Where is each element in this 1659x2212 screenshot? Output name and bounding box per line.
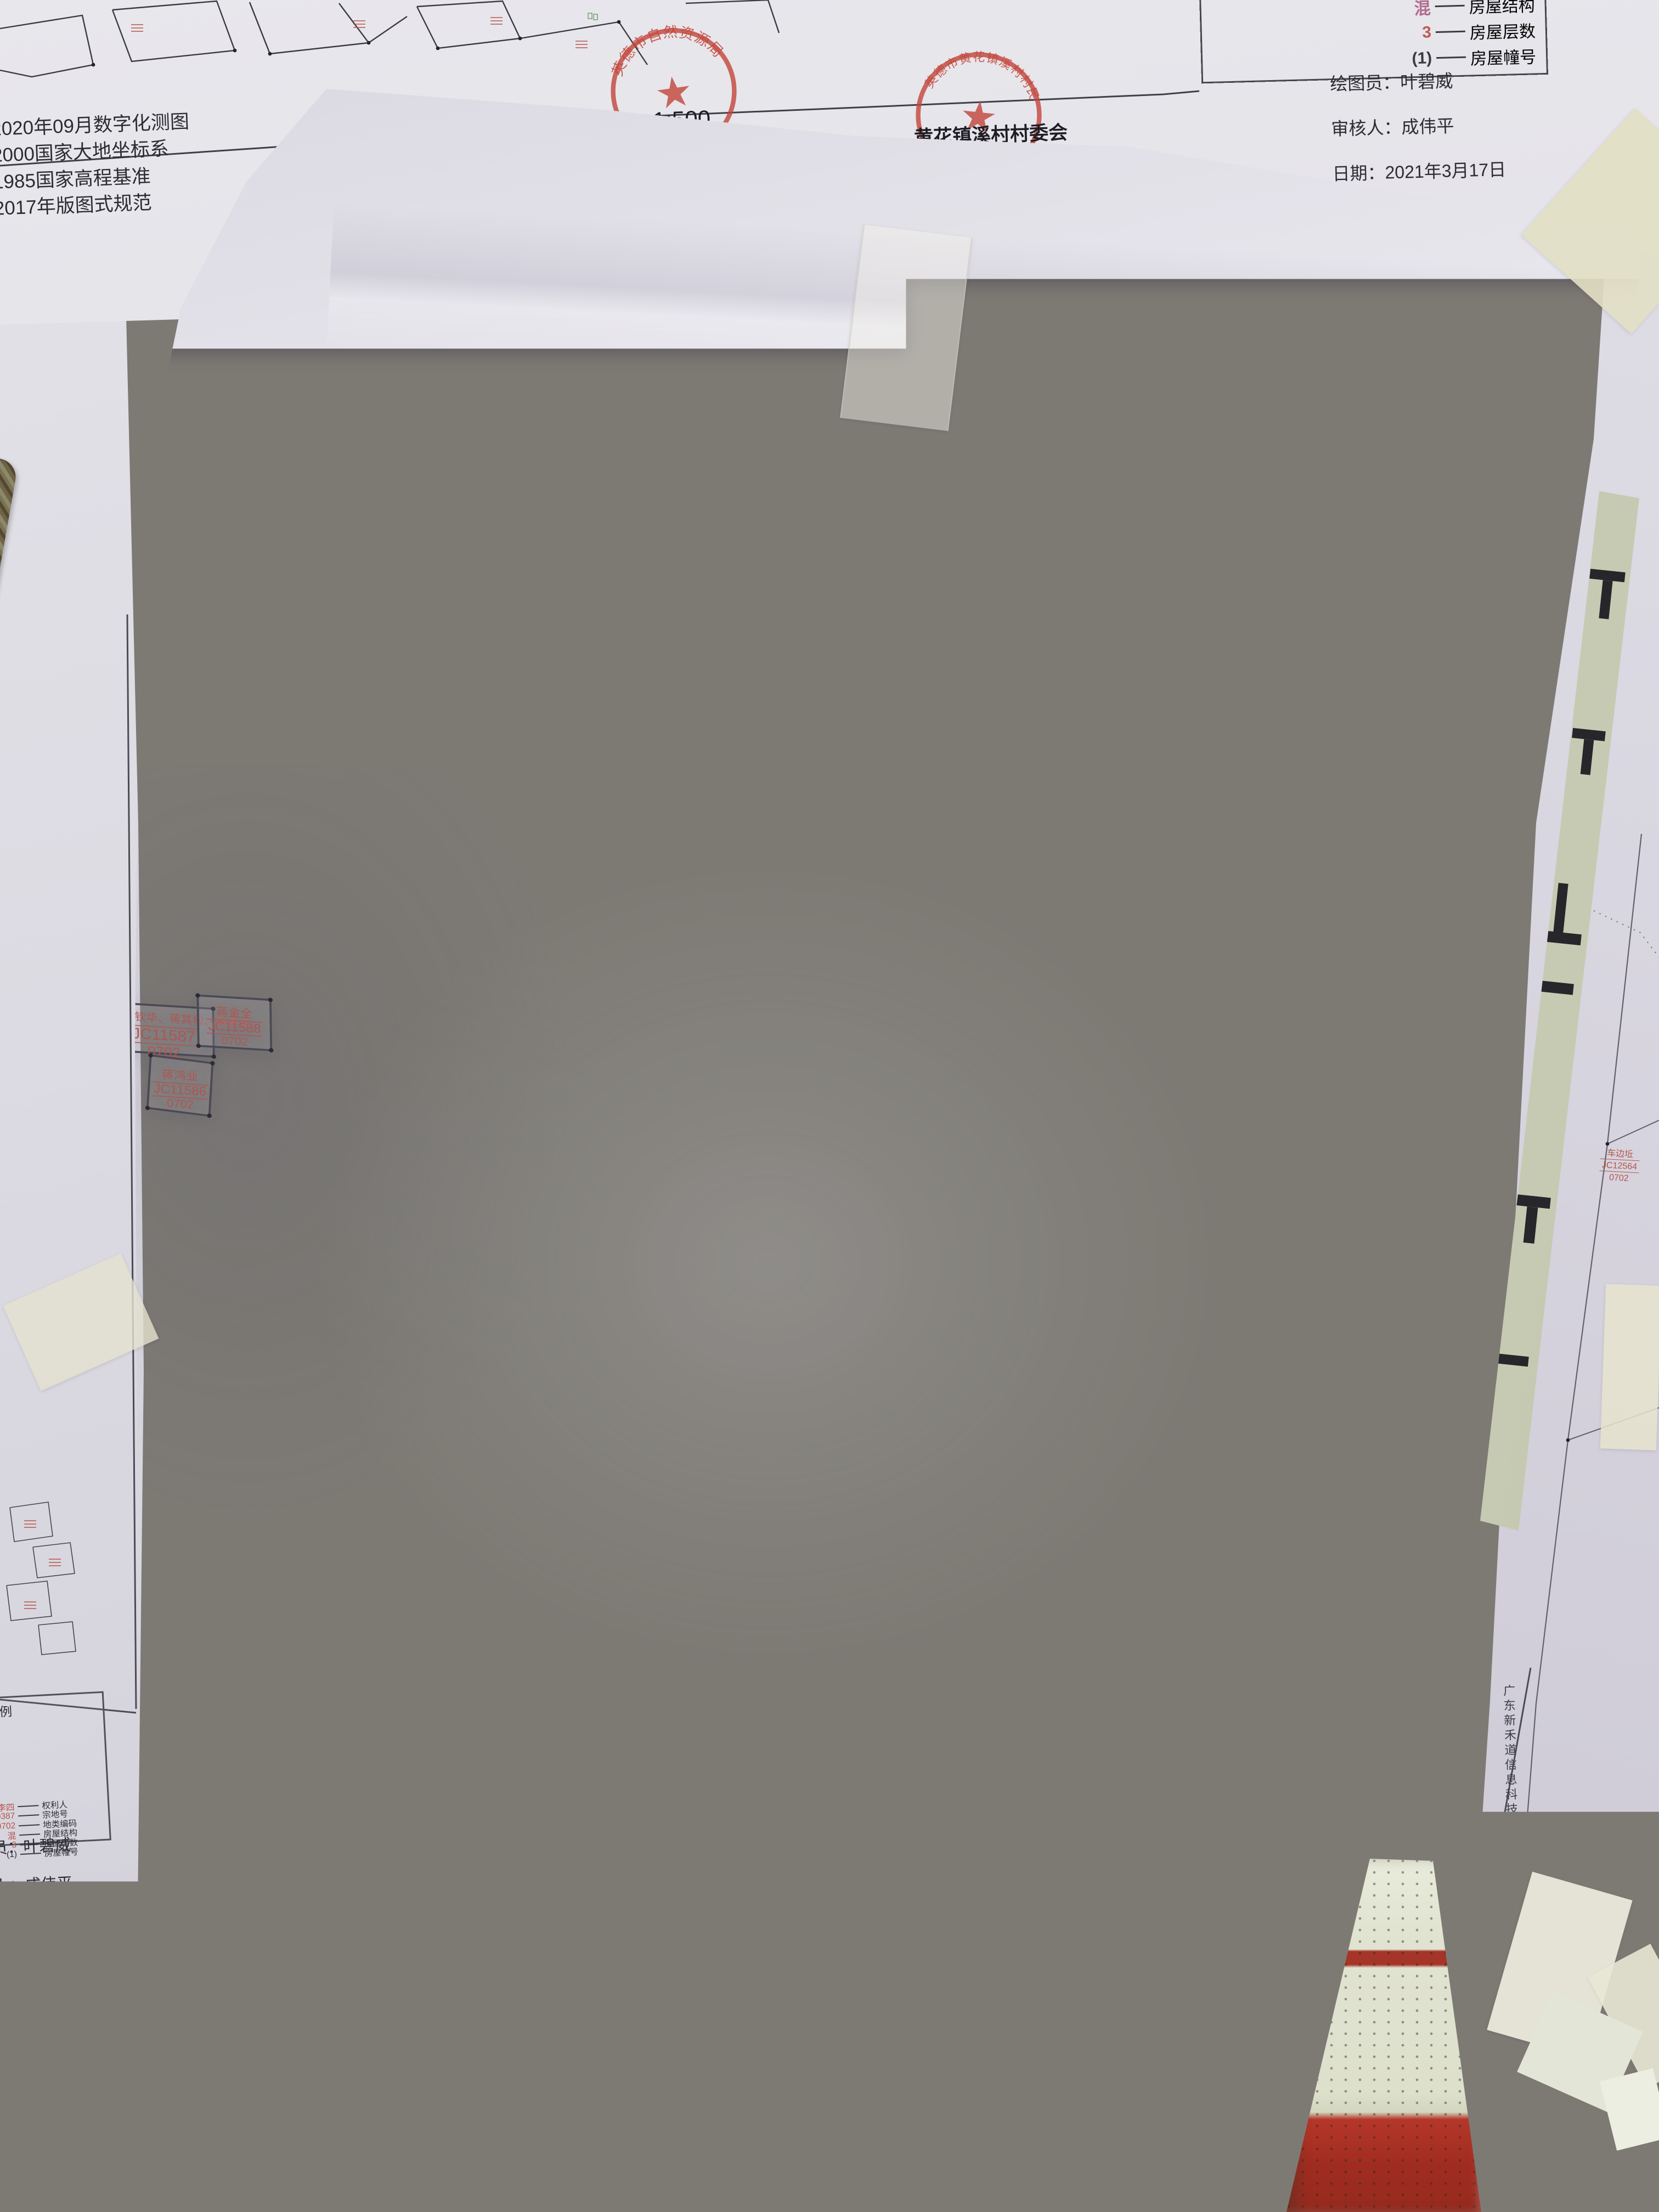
map-legend: 图 例 1：宗地界 2：宗地内标记 (1) 李四 JC00387 0702 其中…: [1172, 1739, 1397, 1897]
left-sheet-credits: 绘图员：叶碧威 审核人：成伟平 日期：2021年3月17日: [0, 1830, 121, 1952]
red-label-fragment: [575, 41, 588, 48]
svg-text:黎阿娇: 黎阿娇: [419, 1427, 456, 1442]
garden-symbol: [1205, 1020, 1219, 1034]
garden-symbol: [1147, 1071, 1161, 1085]
svg-text:0702: 0702: [550, 1571, 577, 1585]
house-row: [592, 1263, 689, 1317]
garden-symbol: [1220, 1055, 1234, 1068]
north-arrow: 北: [1425, 648, 1475, 859]
svg-text:0702: 0702: [167, 1097, 194, 1111]
svg-text:黎其祥: 黎其祥: [539, 1520, 568, 1531]
small-parcel: [989, 1779, 1018, 1805]
garden-symbol: [1286, 1038, 1300, 1051]
svg-text:0702: 0702: [1012, 1239, 1039, 1254]
house-row: [732, 1344, 855, 1412]
top-sheet-credits: 绘图员：叶碧威 审核人：成伟平 日期：2021年3月17日: [1330, 66, 1507, 205]
garden-symbol: [1355, 1059, 1369, 1072]
svg-text:0702: 0702: [424, 1455, 451, 1470]
svg-text:0702: 0702: [947, 1255, 980, 1273]
svg-text:蒋成中: 蒋成中: [883, 1080, 928, 1098]
date: 日期：2021年3月17日: [0, 1907, 121, 1937]
stone: [1558, 2189, 1571, 2198]
garden-symbol: [1319, 1152, 1333, 1165]
svg-text:蒋水旺: 蒋水旺: [947, 1145, 991, 1164]
svg-text:蒋房娣: 蒋房娣: [973, 1178, 1017, 1197]
svg-text:黎锦华: 黎锦华: [554, 1495, 591, 1510]
svg-text:蒋贵甲: 蒋贵甲: [890, 1160, 934, 1179]
garden-symbol: [1199, 1174, 1214, 1187]
svg-text:蒋仕成: 蒋仕成: [837, 1172, 873, 1187]
grass-symbol: [786, 1104, 798, 1118]
parcel-boundary-symbol: [1216, 1770, 1253, 1783]
svg-text:蒋路伟: 蒋路伟: [988, 1029, 1024, 1043]
map-scale: 1:500: [690, 1864, 727, 1882]
grass-symbol: [346, 1154, 358, 1169]
svg-text:蒋春红: 蒋春红: [545, 1543, 582, 1558]
small-parcel: [1030, 1745, 1068, 1779]
svg-text:0702: 0702: [842, 1200, 868, 1215]
garden-symbol: [1418, 1256, 1432, 1269]
garden-symbol: [1074, 1082, 1088, 1095]
legend-row-parcel-mark: 2：宗地内标记: [0, 1737, 105, 1764]
red-label-fragment: [490, 18, 503, 24]
garden-symbol: [1303, 1101, 1317, 1114]
legend-example-parcel: (1) 李四 JC00387 0702: [1198, 1805, 1267, 1846]
svg-text:黎什军: 黎什军: [628, 1396, 657, 1408]
drafter: 绘图员：叶碧威: [0, 1830, 117, 1860]
map-content: 蒋其炳、蒋钦华、蒋其松、蒋荣华JC115870702蒋金全JC115880702…: [69, 883, 1516, 1846]
svg-text:蒋鸿业: 蒋鸿业: [162, 1068, 199, 1083]
grass-symbol: [805, 1205, 817, 1219]
right-sheet-frame-corner: [1502, 1668, 1659, 1837]
svg-text:黎锡田: 黎锡田: [522, 1427, 551, 1439]
reviewer: 审核人：成伟平: [1331, 111, 1505, 140]
grass-symbol: [850, 1030, 862, 1044]
corner-point: [212, 1054, 216, 1059]
svg-text:0702: 0702: [1609, 1173, 1629, 1183]
parcel: 黎阿娇JC125200702: [392, 1407, 483, 1489]
pond: [713, 1785, 799, 1823]
garden-symbol: [1015, 982, 1029, 995]
reviewer: 审核人：成伟平: [0, 1869, 119, 1898]
garden-symbol: [1094, 1221, 1109, 1234]
tape: [1600, 1284, 1659, 1450]
svg-text:黎山妹: 黎山妹: [530, 1473, 558, 1485]
garden-symbol: [1385, 1129, 1399, 1142]
grass-symbol: [727, 1247, 739, 1261]
svg-text:蒋陕芳: 蒋陕芳: [1007, 1211, 1043, 1226]
garden-symbol: [1441, 1181, 1455, 1194]
grass-symbol: [383, 1086, 395, 1100]
parcel: 蒋鸿业JC115860702: [145, 1053, 215, 1118]
garden-symbol: [1323, 976, 1338, 989]
grass-symbol: [439, 1144, 452, 1159]
note-line: 2000国家大地坐标系: [1493, 1854, 1609, 1873]
garden-symbol: [1282, 1214, 1296, 1227]
top-sheet-legend-rows: 混房屋结构3房屋层数(1)房屋幢号: [1201, 0, 1546, 77]
house-row: [611, 1570, 707, 1623]
corner-point: [195, 993, 200, 997]
svg-text:车边坵: 车边坵: [1607, 1148, 1634, 1159]
small-parcel: [669, 1769, 701, 1797]
house-row: [780, 1408, 876, 1464]
garden-symbol: [1081, 975, 1096, 989]
svg-text:黎田娣: 黎田娣: [549, 1454, 578, 1466]
corner-point: [269, 1048, 273, 1052]
parcel: 蒋金全JC115880702: [195, 993, 273, 1052]
garden-symbol: [1392, 1015, 1407, 1029]
red-label-fragment: [353, 21, 365, 27]
svg-text:JC12564: JC12564: [1602, 1160, 1638, 1171]
note-line: 2020年09月数字化测图: [1493, 1838, 1609, 1857]
date: 日期：2021年3月17日: [1332, 156, 1506, 185]
garden-symbol: [1259, 1277, 1273, 1290]
drafter: 绘图员：叶碧威: [1330, 66, 1504, 95]
survey-notes: 2020年09月数字化测图2000国家大地坐标系1985国家高程基准2017年版…: [274, 1855, 396, 1929]
north-label: 北: [1432, 648, 1468, 689]
garden-symbol: [856, 1038, 871, 1051]
garden-symbol: [894, 989, 909, 1002]
svg-text:0702: 0702: [543, 1347, 563, 1358]
grass-symbol: [462, 1057, 474, 1071]
top-sheet-survey-notes: 2020年09月数字化测图2000国家大地坐标系1985国家高程基准2017年版…: [0, 109, 193, 222]
grass-symbol: [716, 1051, 729, 1065]
garden-symbol: [1085, 1032, 1099, 1045]
svg-text:黎平娣: 黎平娣: [534, 1396, 563, 1408]
garden-symbol: [1143, 996, 1157, 1009]
garden-symbol: [1244, 1125, 1258, 1138]
right-sheet-company: 广东新禾道信息科技有限公司: [1499, 1684, 1520, 1844]
grass-symbol: [281, 1064, 293, 1078]
grass-symbol: [238, 1138, 250, 1153]
svg-text:蒋金全: 蒋金全: [216, 1006, 253, 1020]
svg-text:0702: 0702: [641, 1439, 668, 1453]
left-sheet-frame-line: [127, 614, 136, 1709]
left-sheet-legend: 图 例 1：宗地界 2：宗地内标记 (1) 李四 JC00387 0702 其中…: [0, 1691, 111, 1852]
svg-text:黎仕章: 黎仕章: [636, 1410, 673, 1425]
svg-text:蒋信男: 蒋信男: [941, 1220, 986, 1238]
garden-symbol: [1131, 1159, 1145, 1172]
grass-symbol: [895, 1251, 907, 1266]
garden-symbol: [1363, 1216, 1377, 1229]
photo-of-posted-cadastral-maps: 图 例 1：宗地界 2：宗地内标记 (1) 李四 JC00387 0702 其中…: [0, 0, 1659, 2212]
road-line: [296, 1482, 766, 1735]
garden-symbol: [1339, 1279, 1353, 1292]
red-label-fragment: [131, 25, 143, 31]
grass-symbol: [652, 1106, 664, 1120]
svg-text:黎男仕: 黎男仕: [539, 1324, 567, 1336]
garden-symbol: [962, 991, 976, 1004]
svg-text:0702: 0702: [221, 1034, 248, 1048]
garden-symbol: [1176, 1249, 1190, 1262]
village-boundary: [225, 888, 1513, 1769]
stone: [208, 2170, 223, 2180]
map-frame: [154, 594, 1493, 1938]
garden-symbol: [1423, 1080, 1437, 1093]
parcel: 黎男仕JC905200702: [516, 1309, 589, 1374]
parcel-label: 车边坵JC125640702: [1599, 1148, 1640, 1184]
svg-text:蒋国伟: 蒋国伟: [977, 1108, 1022, 1126]
seal-note: （盖章）: [831, 1892, 883, 1912]
grass-symbol: [324, 996, 336, 1010]
